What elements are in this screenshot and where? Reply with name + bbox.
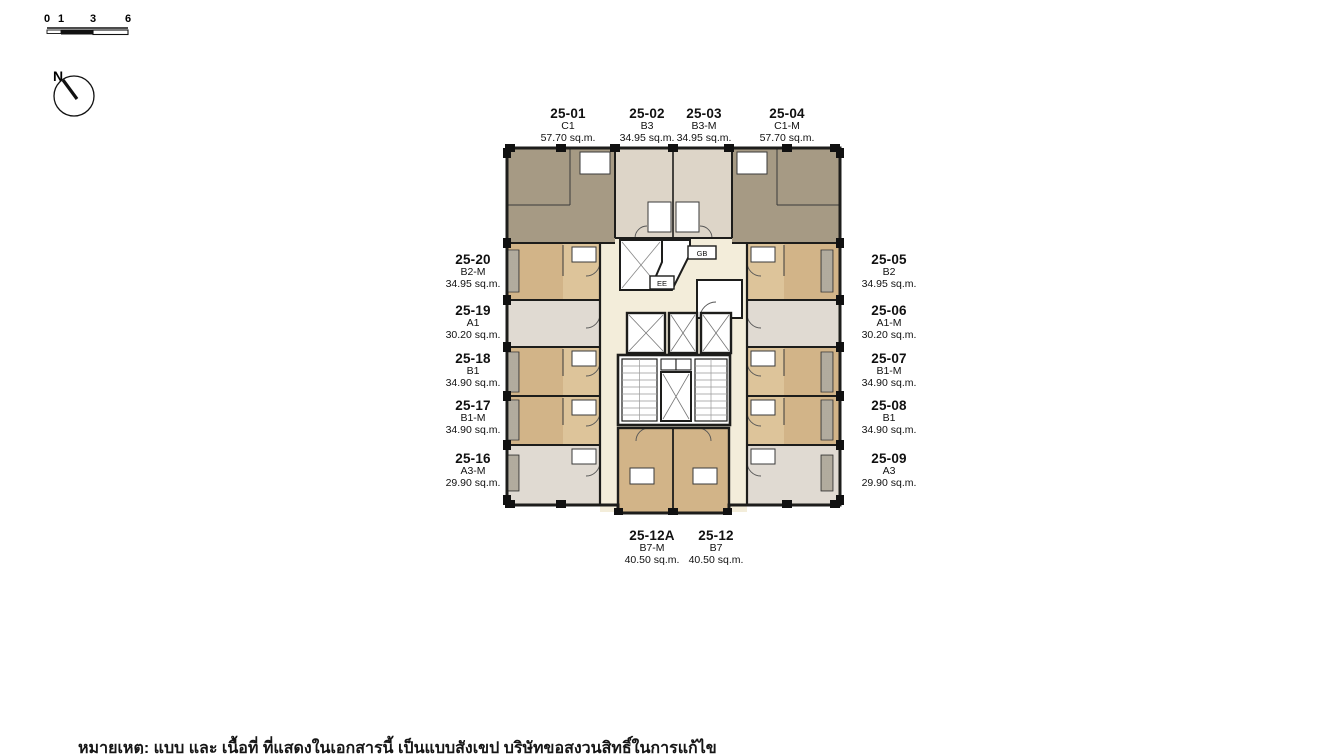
unit-area: 29.90 sq.m. [862,478,917,490]
unit-id: 25-01 [541,106,596,121]
balcony [821,400,833,440]
unit-area: 34.90 sq.m. [862,425,917,437]
balcony [821,250,833,292]
unit-label-25-02: 25-02 B3 34.95 sq.m. [620,106,675,144]
unit-type: B1-M [862,366,917,378]
unit-area: 34.90 sq.m. [446,378,501,390]
scale-tick-6: 6 [125,13,131,25]
unit-area: 34.95 sq.m. [446,279,501,291]
unit-label-25-12A: 25-12A B7-M 40.50 sq.m. [625,528,680,566]
scale-tick-0: 0 [44,13,50,25]
unit-type: B1 [862,413,917,425]
unit-type: B7 [689,543,744,555]
unit-id: 25-18 [446,351,501,366]
unit-area: 34.95 sq.m. [862,279,917,291]
balcony [507,250,519,292]
unit-id: 25-04 [760,106,815,121]
unit-area: 34.95 sq.m. [677,133,732,145]
unit-label-25-06: 25-06 A1-M 30.20 sq.m. [862,303,917,341]
unit-id: 25-19 [446,303,501,318]
unit-type: B3 [620,121,675,133]
unit-label-25-16: 25-16 A3-M 29.90 sq.m. [446,451,501,489]
service-lift-label: EE [657,279,667,288]
unit-id: 25-09 [862,451,917,466]
unit-label-25-12: 25-12 B7 40.50 sq.m. [689,528,744,566]
unit-area: 30.20 sq.m. [446,330,501,342]
unit-id: 25-06 [862,303,917,318]
unit-area: 57.70 sq.m. [760,133,815,145]
unit-label-25-20: 25-20 B2-M 34.95 sq.m. [446,252,501,290]
unit-id: 25-05 [862,252,917,267]
balcony [821,455,833,491]
compass-needle-icon [63,80,77,99]
disclaimer-footnote: หมายเหตุ: แบบ และ เนื้อที่ ที่แสดงในเอกส… [78,736,717,754]
unit-label-25-05: 25-05 B2 34.95 sq.m. [862,252,917,290]
unit-label-25-07: 25-07 B1-M 34.90 sq.m. [862,351,917,389]
unit-area: 57.70 sq.m. [541,133,596,145]
unit-type: A3 [862,466,917,478]
unit-25-06-shape [747,300,840,347]
unit-area: 29.90 sq.m. [446,478,501,490]
garbage-room-label: GB [697,249,708,258]
unit-type: B1 [446,366,501,378]
unit-type: C1 [541,121,596,133]
north-label: N [53,68,63,84]
scale-bar: 0 1 3 6 [44,13,131,35]
unit-label-25-03: 25-03 B3-M 34.95 sq.m. [677,106,732,144]
unit-id: 25-02 [620,106,675,121]
unit-id: 25-20 [446,252,501,267]
unit-id: 25-12 [689,528,744,543]
scale-tick-1: 1 [58,13,64,25]
north-compass: N [53,68,94,116]
unit-label-25-19: 25-19 A1 30.20 sq.m. [446,303,501,341]
unit-label-25-17: 25-17 B1-M 34.90 sq.m. [446,398,501,436]
unit-type: A3-M [446,466,501,478]
unit-id: 25-16 [446,451,501,466]
unit-area: 40.50 sq.m. [625,555,680,567]
unit-label-25-09: 25-09 A3 29.90 sq.m. [862,451,917,489]
unit-area: 40.50 sq.m. [689,555,744,567]
unit-type: A1-M [862,318,917,330]
unit-label-25-01: 25-01 C1 57.70 sq.m. [541,106,596,144]
unit-id: 25-17 [446,398,501,413]
unit-id: 25-07 [862,351,917,366]
unit-id: 25-03 [677,106,732,121]
lift-bank [627,313,731,353]
unit-id: 25-12A [625,528,680,543]
unit-type: C1-M [760,121,815,133]
unit-type: B7-M [625,543,680,555]
unit-type: B3-M [677,121,732,133]
scale-tick-3: 3 [90,13,96,25]
balcony [821,352,833,392]
balcony [507,400,519,440]
unit-area: 34.90 sq.m. [446,425,501,437]
balcony [507,455,519,491]
unit-type: B2-M [446,267,501,279]
unit-25-19-shape [507,300,600,347]
unit-area: 34.90 sq.m. [862,378,917,390]
unit-type: B2 [862,267,917,279]
floor-plan-page: 0 1 3 6 N [0,0,1342,754]
unit-id: 25-08 [862,398,917,413]
unit-area: 30.20 sq.m. [862,330,917,342]
unit-label-25-04: 25-04 C1-M 57.70 sq.m. [760,106,815,144]
unit-label-25-08: 25-08 B1 34.90 sq.m. [862,398,917,436]
unit-type: A1 [446,318,501,330]
unit-type: B1-M [446,413,501,425]
unit-label-25-18: 25-18 B1 34.90 sq.m. [446,351,501,389]
shaft-small [676,359,691,370]
balcony [507,352,519,392]
unit-area: 34.95 sq.m. [620,133,675,145]
stair-core [618,355,730,425]
shaft-small [661,359,676,370]
